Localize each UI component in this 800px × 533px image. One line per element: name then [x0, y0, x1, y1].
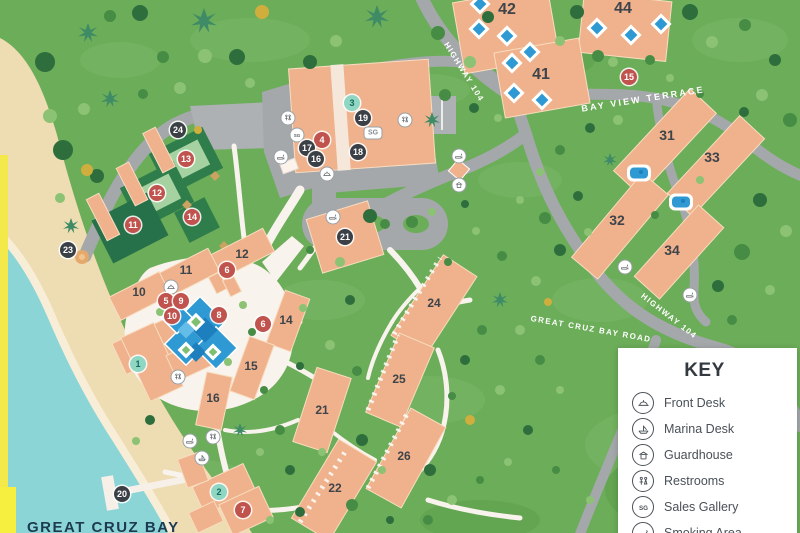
key-item-label: Front Desk: [664, 396, 725, 410]
key-item-label: Smoking Area: [664, 526, 742, 533]
front-desk-icon: [632, 392, 654, 414]
key-item-front-desk: Front Desk: [632, 390, 797, 416]
map-key: KEY Front DeskMarina DeskGuardhouseRestr…: [618, 348, 797, 533]
key-item-restrooms: Restrooms: [632, 468, 797, 494]
key-items: Front DeskMarina DeskGuardhouseRestrooms…: [632, 390, 797, 533]
key-item-smoking-area: Smoking Area: [632, 520, 797, 533]
key-item-label: Sales Gallery: [664, 500, 738, 514]
key-item-sales-gallery: SGSales Gallery: [632, 494, 797, 520]
key-item-guardhouse: Guardhouse: [632, 442, 797, 468]
corner-strip-yellow: [0, 487, 16, 533]
key-item-label: Restrooms: [664, 474, 724, 488]
restrooms-icon: [632, 470, 654, 492]
sales-gallery-icon: SG: [632, 496, 654, 518]
key-item-label: Marina Desk: [664, 422, 734, 436]
resort-map: HIGHWAY 104BAY VIEW TERRACEGREAT CRUZ BA…: [0, 0, 800, 533]
marina-desk-icon: [632, 418, 654, 440]
key-item-label: Guardhouse: [664, 448, 733, 462]
svg-text:SG: SG: [638, 505, 647, 512]
edge-strip-yellow: [0, 155, 8, 533]
key-title: KEY: [632, 360, 777, 382]
key-item-marina-desk: Marina Desk: [632, 416, 797, 442]
firepit: [75, 250, 89, 264]
smoking-area-icon: [632, 522, 654, 533]
guardhouse-icon: [632, 444, 654, 466]
bay-name-label: GREAT CRUZ BAY: [27, 519, 180, 533]
